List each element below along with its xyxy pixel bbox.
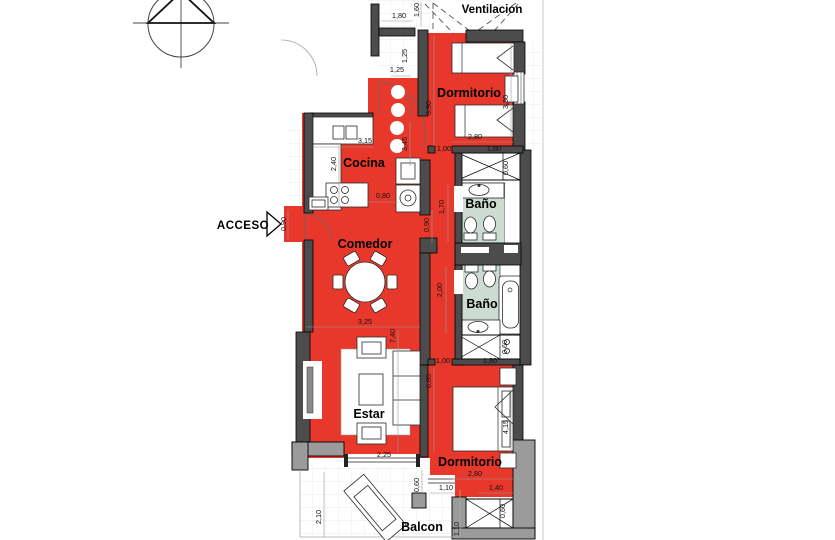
bathtub-icon xyxy=(499,276,522,334)
dim-label: 3,90 xyxy=(424,101,433,115)
dim-label: 3,15 xyxy=(358,136,372,145)
room-label-bano-top: Baño xyxy=(465,197,497,211)
stove-icon xyxy=(326,183,368,207)
dim-label: 1,10 xyxy=(452,522,461,536)
dim-label: 1,00 xyxy=(437,144,451,153)
dim-label: 1,60 xyxy=(412,3,421,17)
room-label-bano-bottom: Baño xyxy=(466,297,498,311)
dim-label: 3,25 xyxy=(358,317,372,326)
toilet-icon xyxy=(464,217,477,240)
dim-label: 2,80 xyxy=(468,469,482,478)
bed-single xyxy=(452,43,514,73)
dim-label: 0,60 xyxy=(501,161,510,175)
bidet-icon xyxy=(483,216,496,240)
closet-top xyxy=(458,153,520,180)
bed-double xyxy=(453,387,513,451)
dim-label: 7,40 xyxy=(388,329,397,343)
dim-label: 3,45 xyxy=(400,137,409,151)
dim-label: 1,00 xyxy=(436,356,450,365)
armchair xyxy=(357,423,386,444)
living-window xyxy=(303,361,322,419)
bidet-icon xyxy=(483,264,496,287)
dim-label: 1,80 xyxy=(392,11,406,20)
floorplan-page: 1,80 1,60 1,25 1,25 3,15 2,40 0,80 3,45 … xyxy=(0,0,835,540)
sofa xyxy=(393,351,420,425)
room-label-comedor: Comedor xyxy=(338,237,393,251)
armchair xyxy=(357,337,386,358)
dim-label: 0,60 xyxy=(412,478,421,492)
room-label-dormitorio-bottom: Dormitorio xyxy=(438,455,502,469)
room-label-dormitorio-top: Dormitorio xyxy=(437,86,501,100)
dim-label: 0,90 xyxy=(279,217,288,231)
dim-label: 1,25 xyxy=(400,49,409,63)
toilet-icon xyxy=(465,265,478,289)
floorplan-drawing: 1,80 1,60 1,25 1,25 3,15 2,40 0,80 3,45 … xyxy=(0,0,835,540)
dim-label: 0,60 xyxy=(500,340,509,354)
north-compass-icon xyxy=(133,0,229,68)
coffee-table xyxy=(359,374,383,405)
dim-label: 0,80 xyxy=(376,191,390,200)
washer-icon xyxy=(396,185,420,212)
dim-label: 2,25 xyxy=(377,450,391,459)
dim-label: 1,10 xyxy=(439,483,453,492)
dim-label: 4,15 xyxy=(501,420,510,434)
dim-label: 1,80 xyxy=(487,144,501,153)
dim-label: 1,25 xyxy=(390,65,404,74)
entry-label: ACCESO xyxy=(217,220,269,232)
dim-label: 6,85 xyxy=(424,374,433,388)
fridge-icon xyxy=(396,158,420,184)
dining-chair xyxy=(333,275,343,289)
room-label-balcon: Balcon xyxy=(401,520,443,534)
bathroom-top xyxy=(462,183,520,243)
dim-label: 1,70 xyxy=(437,200,446,214)
balcony-column xyxy=(412,493,426,508)
bath-top-door-gap xyxy=(454,186,463,212)
dim-label: 2,00 xyxy=(435,283,444,297)
dining-chair xyxy=(387,275,397,289)
dim-label: 2,40 xyxy=(329,157,338,171)
dim-label: 1,40 xyxy=(489,483,503,492)
dim-label: 3,30 xyxy=(501,95,510,109)
dim-label: 2,10 xyxy=(314,510,323,524)
corridor-floor xyxy=(428,143,457,365)
room-label-cocina: Cocina xyxy=(343,156,386,170)
dining-table xyxy=(345,262,385,302)
oven-cabinet xyxy=(309,197,328,210)
nightstand xyxy=(500,368,516,385)
nightstand xyxy=(500,453,516,468)
bath-bottom-door-gap xyxy=(454,270,463,294)
dim-label: 1,80 xyxy=(483,356,497,365)
room-label-estar: Estar xyxy=(353,407,384,421)
living-furniture xyxy=(341,337,420,444)
dim-label: 0,60 xyxy=(498,504,507,518)
room-label-ventilacion: Ventilacion xyxy=(462,4,523,16)
dim-label: 0,90 xyxy=(422,218,431,232)
dim-label: 2,80 xyxy=(468,132,482,141)
